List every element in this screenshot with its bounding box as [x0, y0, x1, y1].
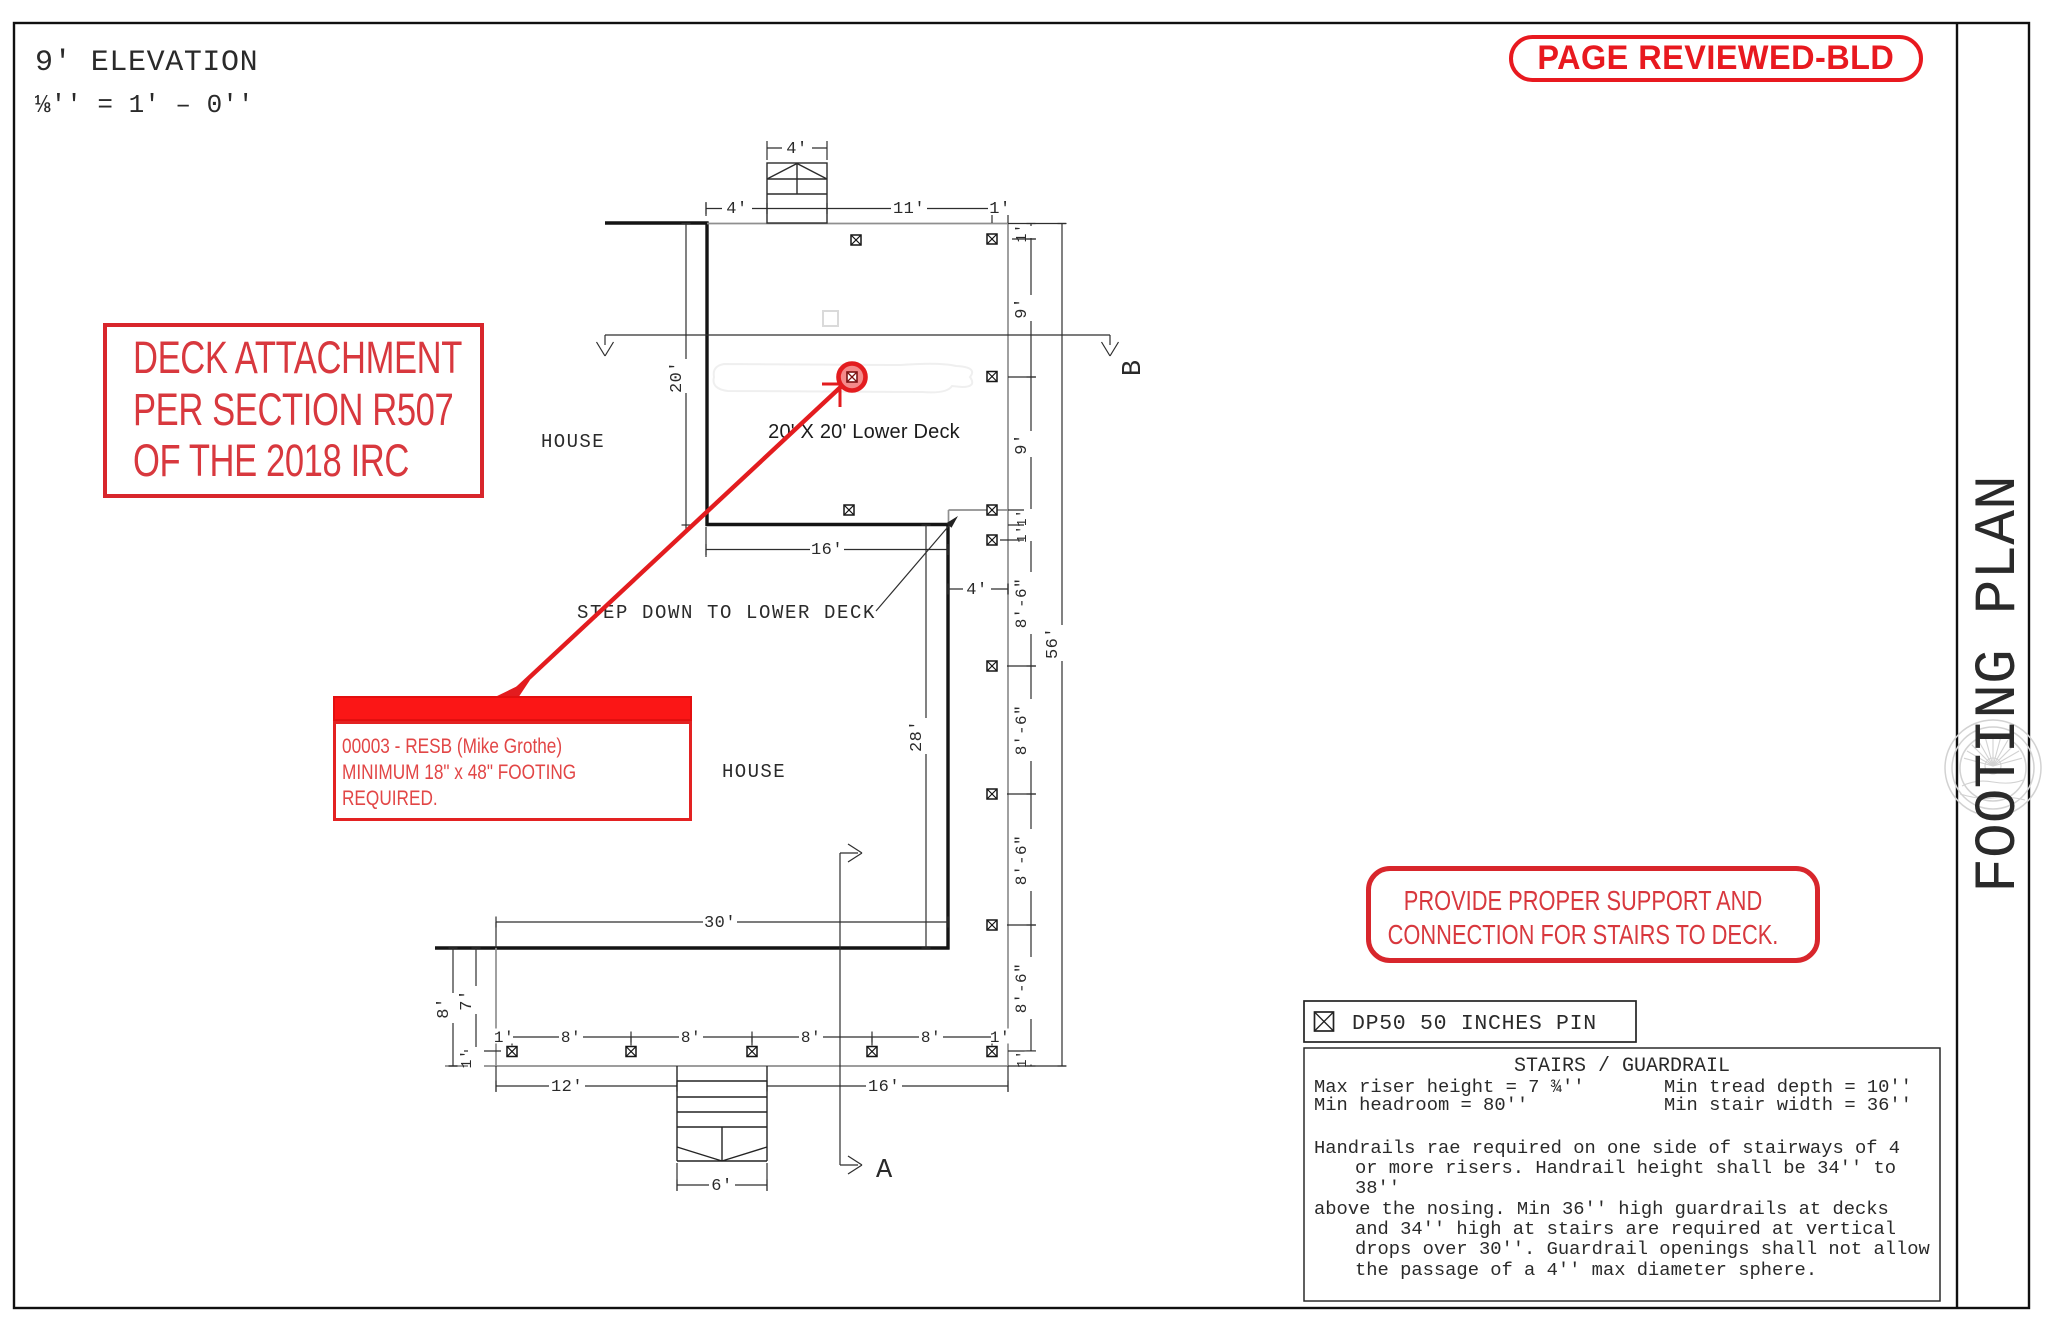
svg-text:1′: 1′: [1014, 223, 1031, 242]
svg-text:8′-6″: 8′-6″: [1013, 963, 1031, 1014]
svg-text:Min headroom = 80′′: Min headroom = 80′′: [1314, 1094, 1528, 1116]
svg-text:8′: 8′: [921, 1029, 941, 1047]
svg-text:HOUSE: HOUSE: [722, 761, 786, 783]
svg-text:the passage of a 4′′ max diame: the passage of a 4′′ max diameter sphere…: [1355, 1259, 1817, 1281]
svg-text:20′: 20′: [668, 361, 687, 393]
svg-text:A: A: [876, 1156, 893, 1186]
svg-text:1′: 1′: [1015, 1050, 1031, 1068]
svg-text:9′ ELEVATION: 9′ ELEVATION: [35, 46, 258, 80]
svg-text:38′′: 38′′: [1355, 1177, 1400, 1199]
svg-text:FOOTING PLAN: FOOTING PLAN: [1967, 475, 2032, 893]
svg-text:8′-6″: 8′-6″: [1013, 835, 1031, 886]
svg-text:8′: 8′: [681, 1029, 701, 1047]
svg-text:30′: 30′: [704, 914, 736, 933]
svg-text:HOUSE: HOUSE: [541, 431, 605, 453]
svg-text:1′: 1′: [990, 1029, 1010, 1047]
svg-text:9′: 9′: [1013, 297, 1032, 318]
svg-text:4′: 4′: [786, 140, 807, 159]
svg-text:STEP DOWN TO LOWER DECK: STEP DOWN TO LOWER DECK: [577, 602, 876, 624]
svg-text:56′: 56′: [1044, 627, 1063, 659]
svg-text:7′: 7′: [458, 989, 477, 1010]
svg-text:1′: 1′: [1015, 525, 1031, 543]
svg-text:16′: 16′: [868, 1078, 900, 1097]
svg-text:drops over 30′′. Guardrail ope: drops over 30′′. Guardrail openings shal…: [1355, 1238, 1931, 1260]
svg-text:⅛′′ = 1′ – 0′′: ⅛′′ = 1′ – 0′′: [35, 90, 253, 120]
svg-text:28′: 28′: [908, 720, 927, 752]
svg-text:above the nosing. Min 36′′ hig: above the nosing. Min 36′′ high guardrai…: [1314, 1198, 1889, 1220]
svg-text:12′: 12′: [551, 1078, 583, 1097]
svg-text:and 34′′ high at stairs are re: and 34′′ high at stairs are required at …: [1355, 1218, 1896, 1240]
svg-text:8′-6″: 8′-6″: [1013, 705, 1031, 756]
svg-text:8′-6″: 8′-6″: [1013, 578, 1031, 629]
svg-text:1′: 1′: [494, 1029, 514, 1047]
svg-text:B: B: [1119, 360, 1149, 376]
svg-text:20' X 20' Lower Deck: 20' X 20' Lower Deck: [768, 421, 961, 443]
svg-text:4′: 4′: [726, 200, 747, 219]
svg-text:9′: 9′: [1013, 433, 1032, 454]
svg-text:DP50 50 INCHES PIN: DP50 50 INCHES PIN: [1352, 1012, 1597, 1036]
svg-text:STAIRS / GUARDRAIL: STAIRS / GUARDRAIL: [1514, 1055, 1730, 1078]
svg-text:4′: 4′: [966, 581, 987, 600]
svg-text:11′: 11′: [893, 200, 925, 219]
svg-text:1′: 1′: [1015, 509, 1031, 527]
svg-text:8′: 8′: [435, 997, 454, 1018]
svg-text:Handrails rae required on one: Handrails rae required on one side of st…: [1314, 1137, 1900, 1159]
svg-text:1′: 1′: [989, 200, 1010, 219]
svg-text:8′: 8′: [801, 1029, 821, 1047]
svg-text:Min stair width = 36′′: Min stair width = 36′′: [1664, 1094, 1912, 1116]
svg-text:or more risers. Handrail heigh: or more risers. Handrail height shall be…: [1355, 1157, 1896, 1179]
svg-text:1′: 1′: [459, 1049, 476, 1068]
svg-text:6′: 6′: [711, 1177, 732, 1196]
svg-text:16′: 16′: [811, 541, 843, 560]
svg-text:8′: 8′: [561, 1029, 581, 1047]
